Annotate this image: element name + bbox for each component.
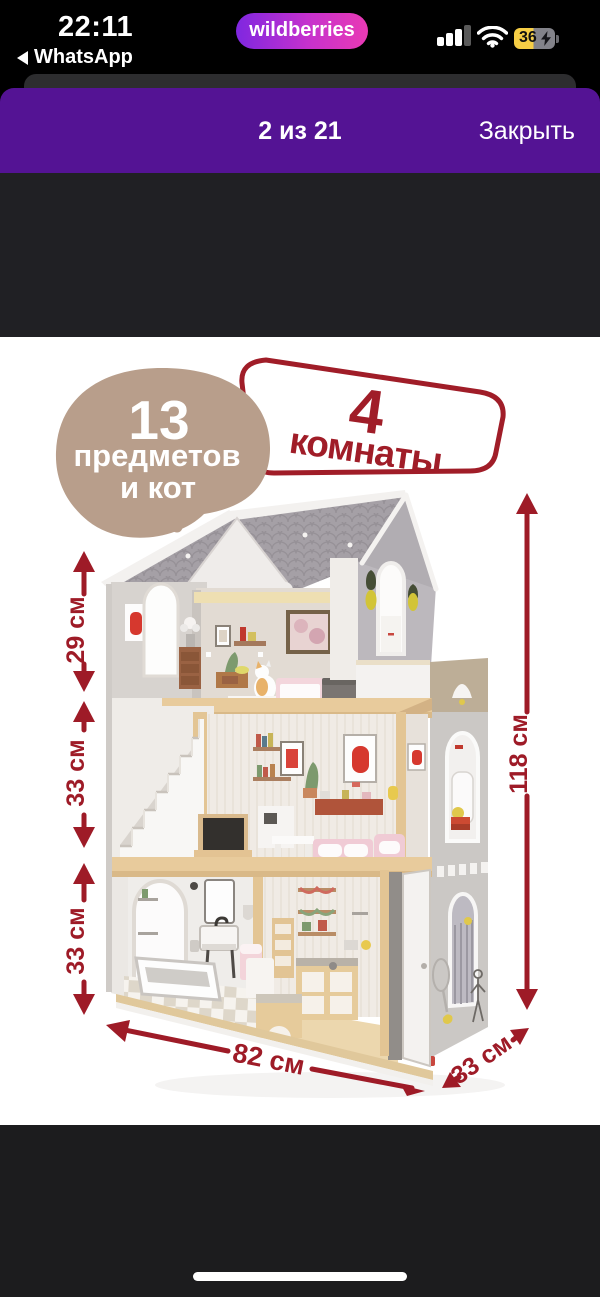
- svg-text:и кот: и кот: [120, 470, 196, 505]
- svg-text:29 см: 29 см: [62, 596, 90, 663]
- svg-text:118 см: 118 см: [505, 714, 533, 794]
- svg-text:предметов: предметов: [73, 438, 240, 473]
- svg-text:33 см: 33 см: [62, 907, 90, 974]
- svg-text:33 см: 33 см: [62, 739, 90, 806]
